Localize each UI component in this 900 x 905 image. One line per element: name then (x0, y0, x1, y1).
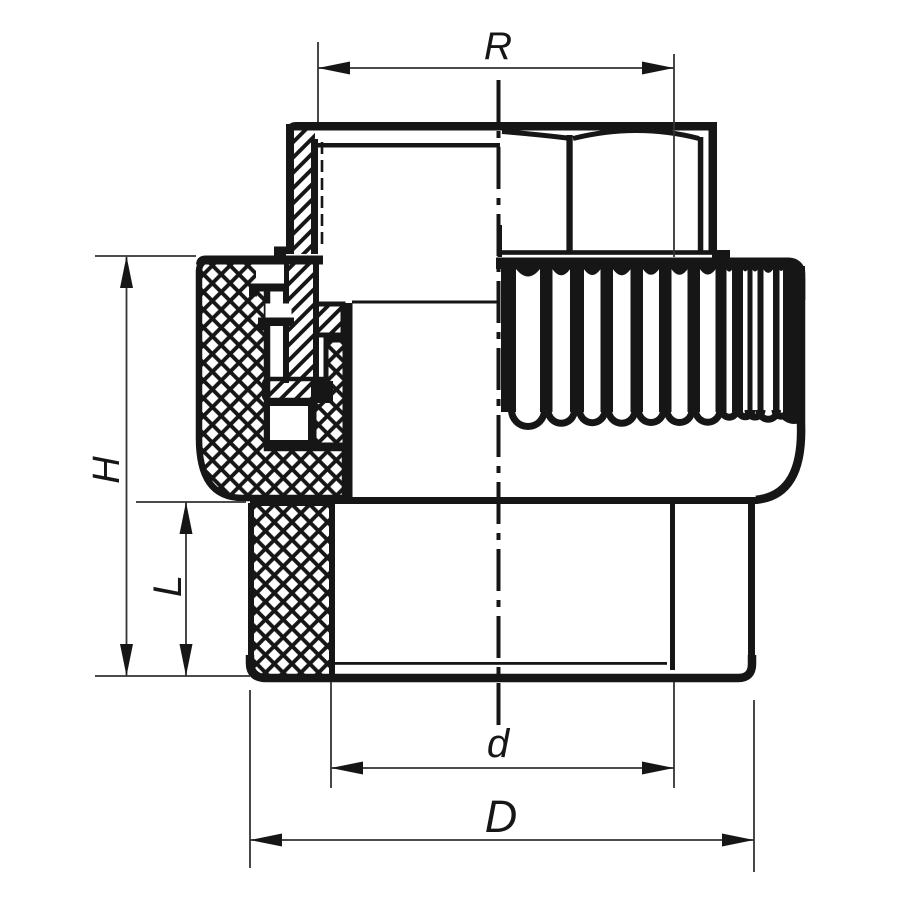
svg-text:D: D (485, 791, 518, 842)
svg-text:d: d (487, 722, 511, 766)
svg-text:L: L (146, 575, 190, 597)
svg-text:R: R (484, 25, 512, 68)
svg-text:H: H (86, 456, 128, 484)
